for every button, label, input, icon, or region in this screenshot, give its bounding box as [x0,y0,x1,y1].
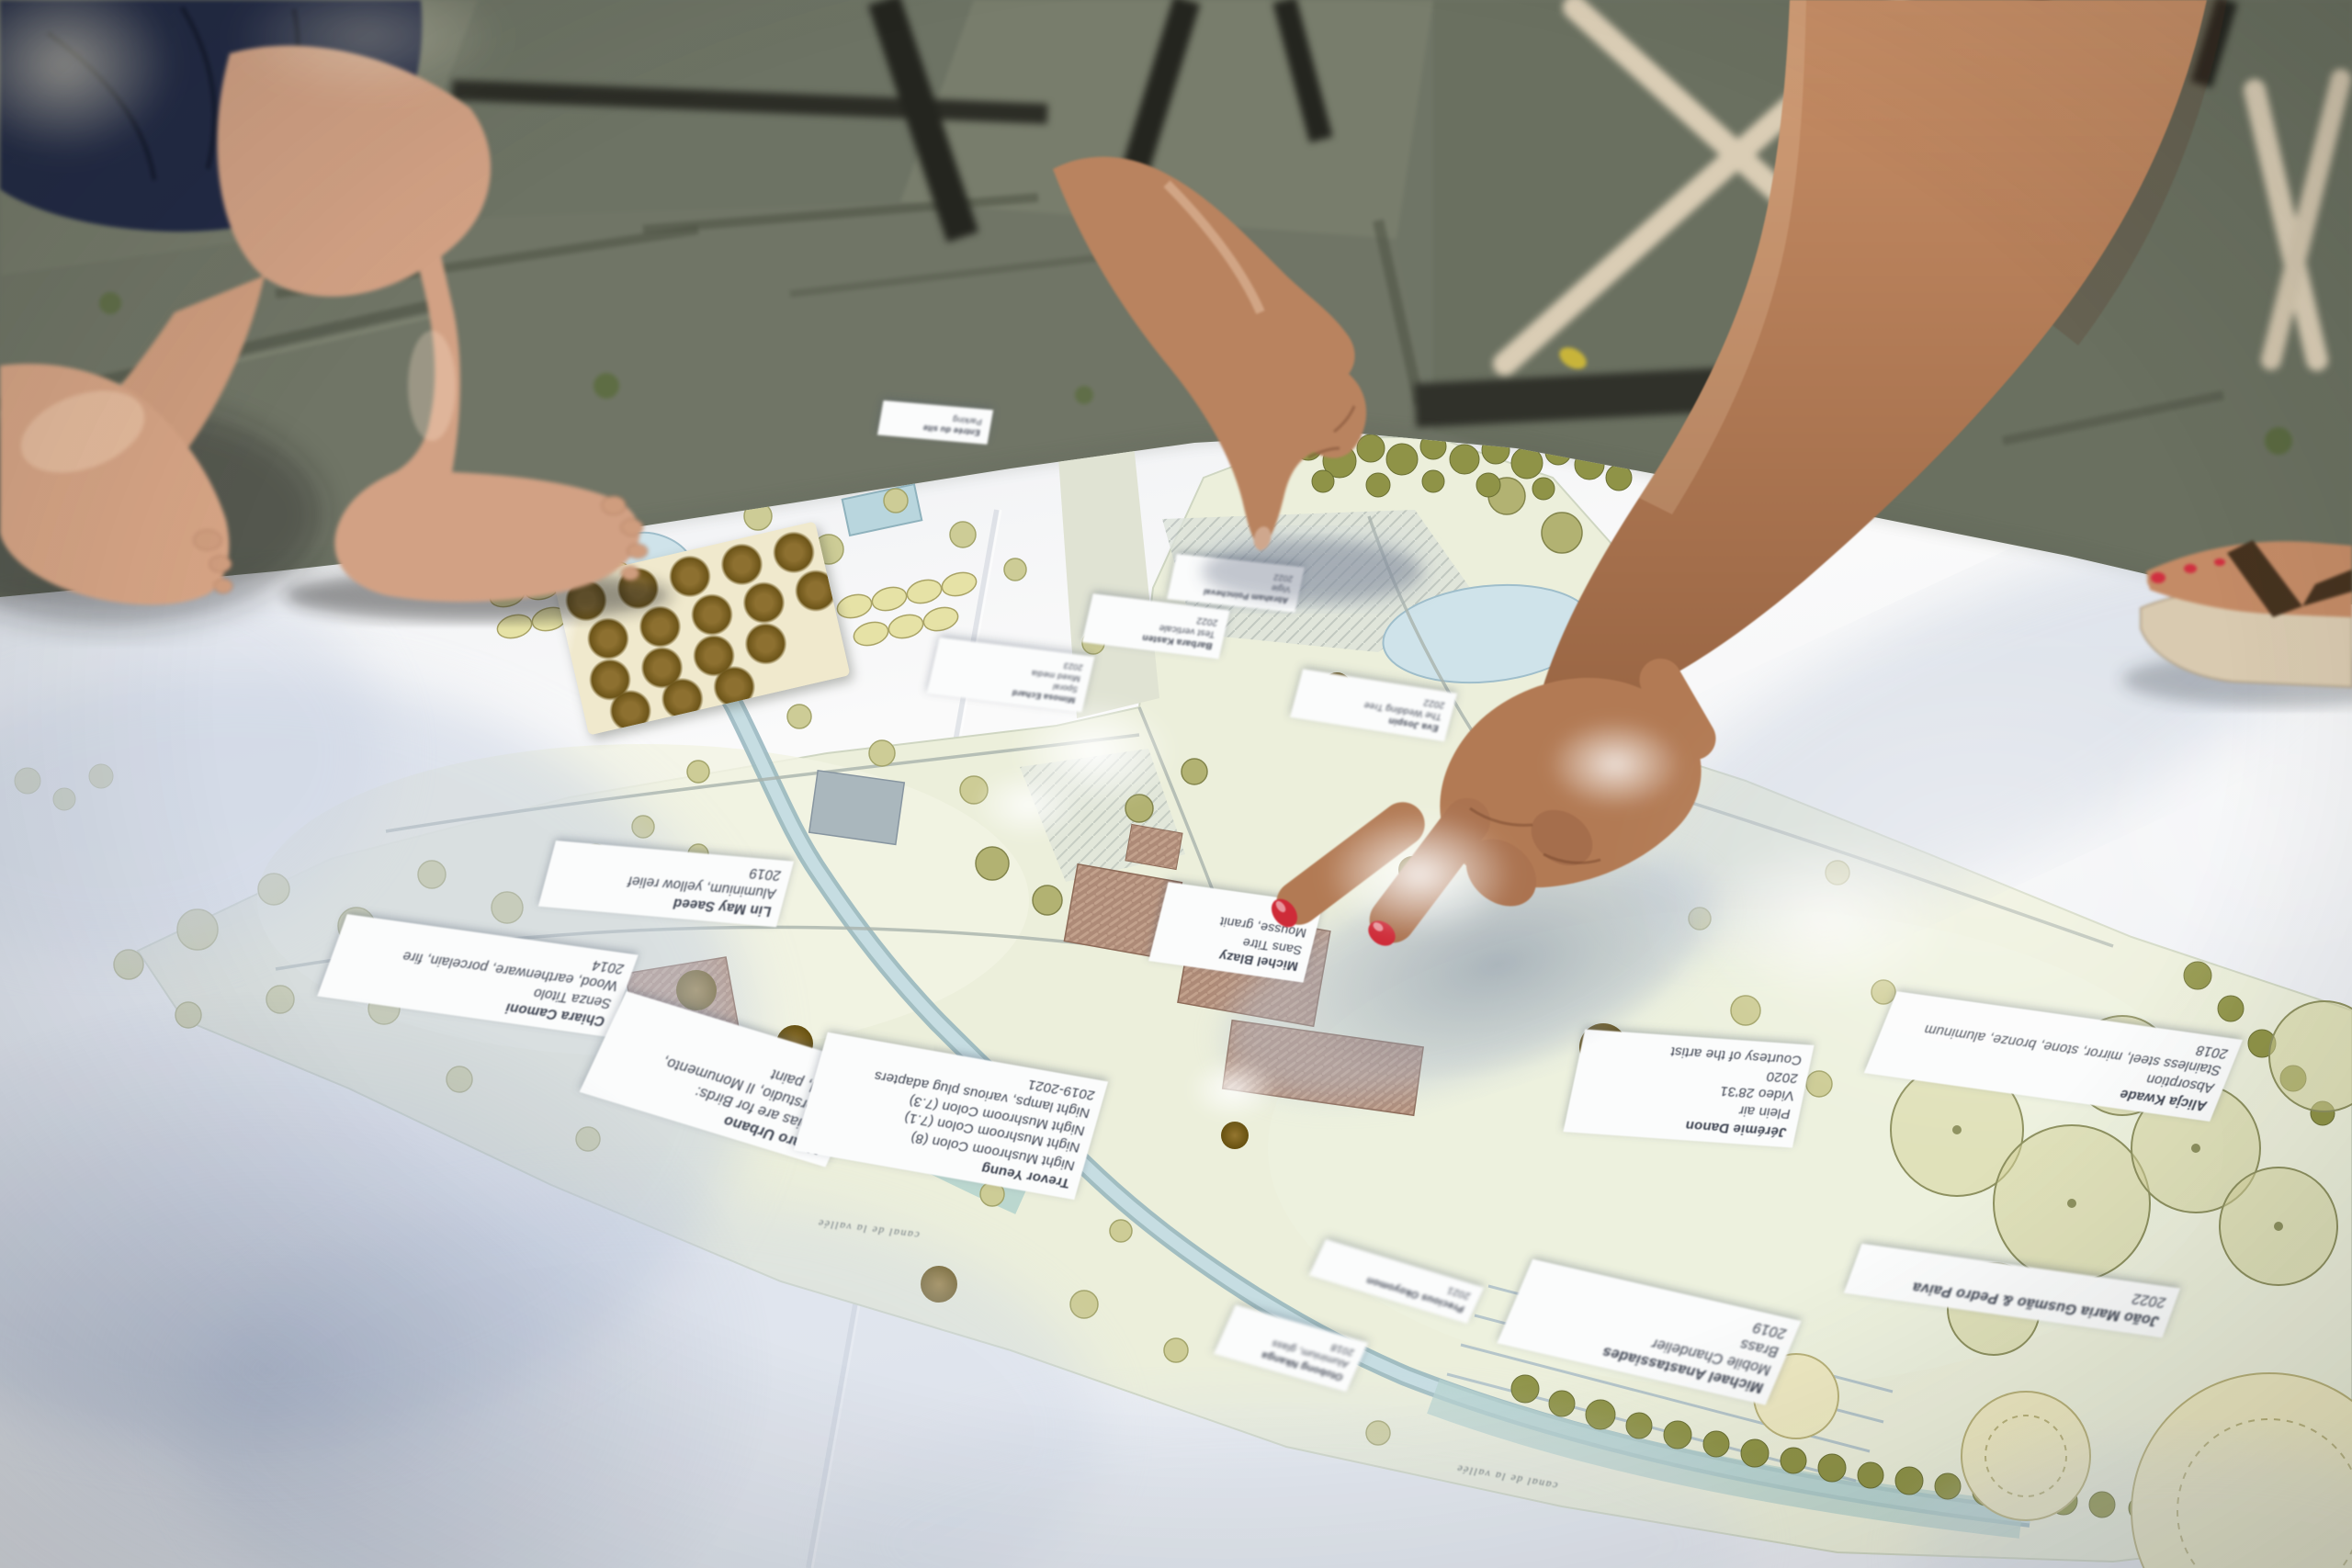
forearm [1542,0,2207,700]
people-layer [0,0,2352,1568]
right-arm-hand [1266,0,2227,953]
left-thigh [217,46,491,297]
photo-scene: Michel BlazySans TitreMousse, granit2014… [0,0,2352,1568]
right-foot [334,255,639,602]
red-toenail-2 [2184,564,2197,573]
pointing-hand [1053,157,1422,603]
red-toenail-3 [2214,558,2225,566]
red-toenail-1 [2151,572,2165,583]
sandal-foot [2122,540,2352,707]
left-person [0,0,671,625]
